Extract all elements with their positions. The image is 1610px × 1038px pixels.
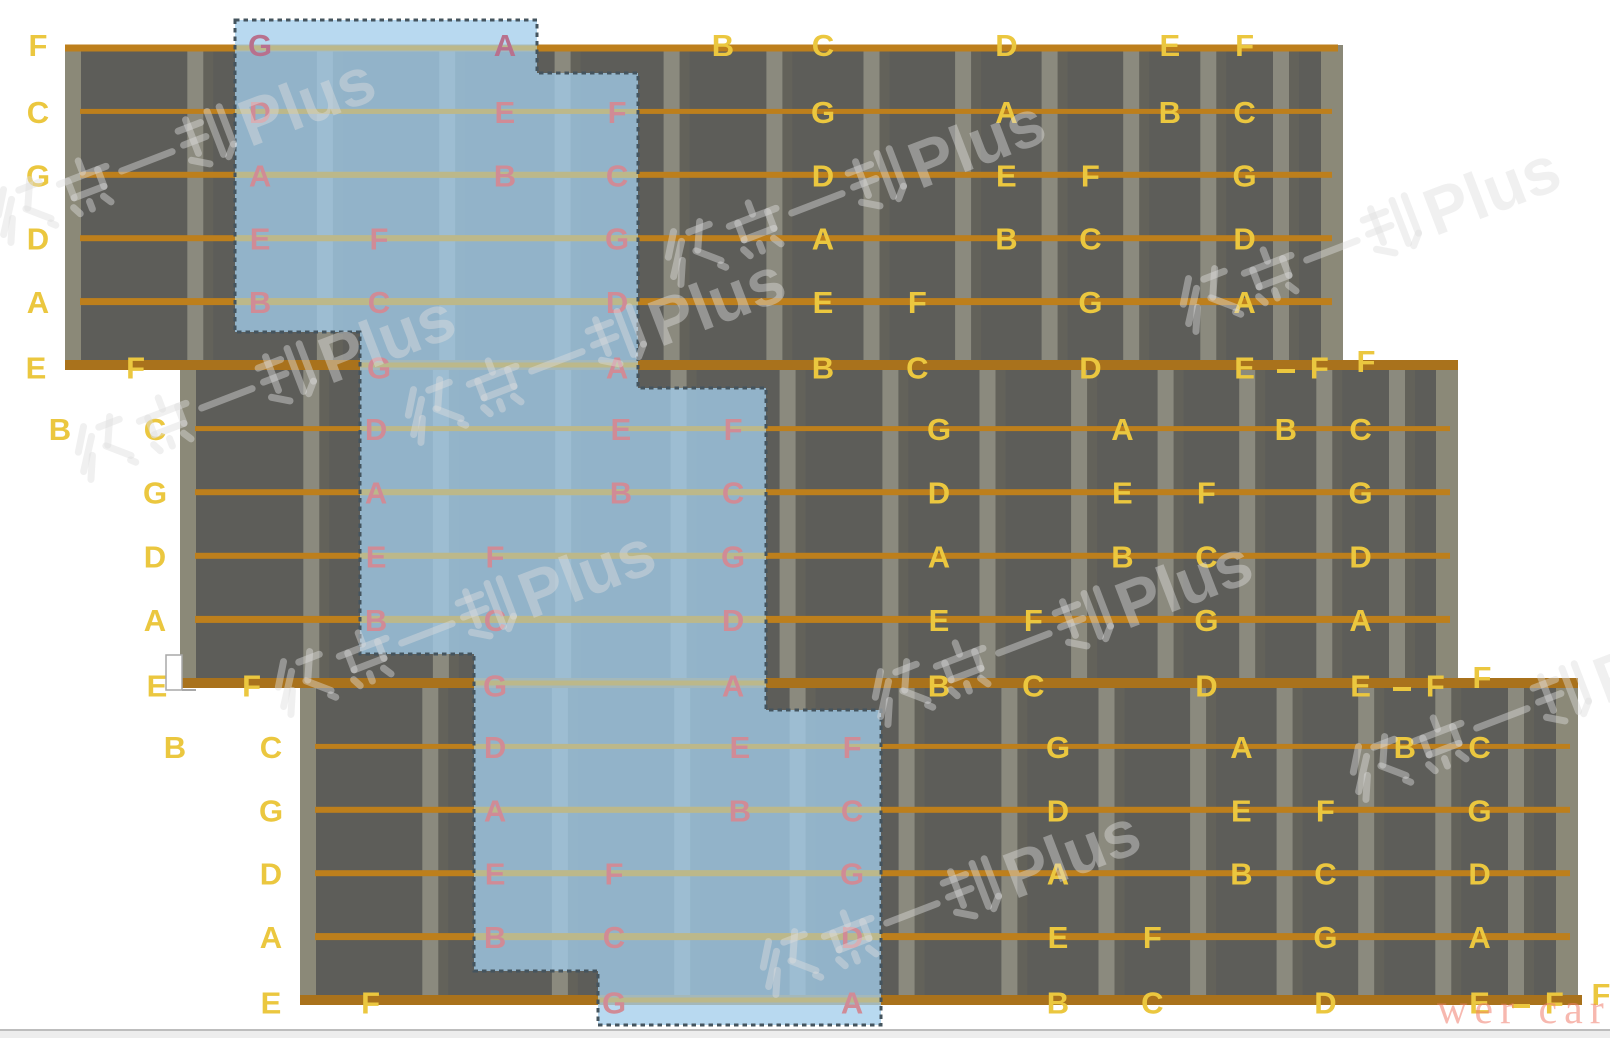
svg-text:G: G xyxy=(1468,793,1492,828)
svg-text:D: D xyxy=(365,412,387,447)
svg-text:F: F xyxy=(486,539,505,574)
svg-text:F: F xyxy=(126,351,145,386)
svg-text:C: C xyxy=(603,920,625,955)
svg-text:F: F xyxy=(1316,793,1335,828)
svg-text:A: A xyxy=(1230,730,1252,765)
svg-text:E: E xyxy=(1231,793,1252,828)
svg-text:G: G xyxy=(721,539,745,574)
svg-text:G: G xyxy=(1349,476,1373,511)
svg-text:A: A xyxy=(1111,412,1133,447)
svg-text:C: C xyxy=(1079,222,1101,257)
svg-text:C: C xyxy=(260,730,282,765)
svg-text:C: C xyxy=(841,793,863,828)
svg-text:B: B xyxy=(1047,986,1069,1021)
svg-text:B: B xyxy=(49,412,71,447)
svg-text:E: E xyxy=(929,603,950,638)
svg-text:B: B xyxy=(365,603,387,638)
svg-text:C: C xyxy=(722,476,744,511)
svg-text:D: D xyxy=(928,476,950,511)
svg-text:F: F xyxy=(1197,476,1216,511)
svg-text:A: A xyxy=(928,539,950,574)
svg-text:C: C xyxy=(906,351,928,386)
svg-text:G: G xyxy=(248,28,272,63)
svg-text:A: A xyxy=(812,222,834,257)
svg-text:G: G xyxy=(1313,920,1337,955)
svg-text:E: E xyxy=(495,95,516,130)
svg-text:C: C xyxy=(1349,412,1371,447)
svg-text:G: G xyxy=(259,793,283,828)
svg-text:C: C xyxy=(1141,986,1163,1021)
svg-text:G: G xyxy=(602,986,626,1021)
svg-text:G: G xyxy=(1046,730,1070,765)
svg-text:B: B xyxy=(610,476,632,511)
svg-text:E: E xyxy=(485,857,506,892)
svg-text:G: G xyxy=(840,857,864,892)
svg-text:D: D xyxy=(1314,986,1336,1021)
svg-text:B: B xyxy=(1394,730,1416,765)
svg-text:D: D xyxy=(260,857,282,892)
svg-text:B: B xyxy=(1159,95,1181,130)
svg-text:F: F xyxy=(843,730,862,765)
svg-text:E: E xyxy=(261,986,282,1021)
svg-text:E: E xyxy=(730,730,751,765)
svg-text:C: C xyxy=(812,28,834,63)
svg-text:E: E xyxy=(1112,476,1133,511)
svg-text:B: B xyxy=(729,793,751,828)
svg-text:C: C xyxy=(1468,730,1490,765)
svg-text:B: B xyxy=(484,920,506,955)
svg-text:E: E xyxy=(813,285,834,320)
svg-text:F: F xyxy=(1235,28,1254,63)
svg-text:D: D xyxy=(1349,539,1371,574)
svg-text:F: F xyxy=(724,412,743,447)
svg-text:wer car: wer car xyxy=(1437,987,1610,1033)
svg-text:C: C xyxy=(27,95,49,130)
svg-text:A: A xyxy=(722,669,744,704)
svg-text:F: F xyxy=(29,28,48,63)
svg-text:Plus: Plus xyxy=(1413,131,1570,250)
svg-text:G: G xyxy=(927,412,951,447)
svg-text:D: D xyxy=(27,222,49,257)
svg-text:D: D xyxy=(995,28,1017,63)
svg-text:D: D xyxy=(1195,669,1217,704)
svg-text:G: G xyxy=(1233,158,1257,193)
svg-text:F: F xyxy=(1426,669,1445,704)
svg-text:D: D xyxy=(722,603,744,638)
svg-text:B: B xyxy=(249,285,271,320)
svg-text:B: B xyxy=(712,28,734,63)
svg-text:F: F xyxy=(370,222,389,257)
svg-text:F: F xyxy=(605,857,624,892)
svg-text:C: C xyxy=(1314,857,1336,892)
svg-text:A: A xyxy=(144,603,166,638)
svg-text:E: E xyxy=(26,351,47,386)
svg-text:F: F xyxy=(1024,603,1043,638)
svg-text:G: G xyxy=(605,222,629,257)
svg-text:E: E xyxy=(250,222,271,257)
svg-text:G: G xyxy=(811,95,835,130)
svg-text:E: E xyxy=(1350,669,1371,704)
svg-text:D: D xyxy=(1233,222,1255,257)
svg-text:A: A xyxy=(484,793,506,828)
svg-text:A: A xyxy=(260,920,282,955)
svg-text:B: B xyxy=(1230,857,1252,892)
svg-text:F: F xyxy=(242,669,261,704)
svg-text:E: E xyxy=(1048,920,1069,955)
svg-text:D: D xyxy=(1079,351,1101,386)
svg-text:D: D xyxy=(144,539,166,574)
svg-text:A: A xyxy=(1349,603,1371,638)
svg-text:G: G xyxy=(1078,285,1102,320)
svg-text:A: A xyxy=(494,28,516,63)
svg-text:G: G xyxy=(143,476,167,511)
svg-text:C: C xyxy=(1022,669,1044,704)
svg-text:B: B xyxy=(1275,412,1297,447)
svg-text:F: F xyxy=(361,986,380,1021)
svg-text:B: B xyxy=(995,222,1017,257)
svg-text:E: E xyxy=(1234,351,1255,386)
svg-text:B: B xyxy=(164,730,186,765)
svg-text:E: E xyxy=(1159,28,1180,63)
svg-text:B: B xyxy=(812,351,834,386)
svg-text:A: A xyxy=(249,158,271,193)
svg-text:A: A xyxy=(27,285,49,320)
svg-text:A: A xyxy=(841,986,863,1021)
svg-text:G: G xyxy=(483,669,507,704)
svg-text:F: F xyxy=(1357,344,1376,379)
svg-text:E: E xyxy=(611,412,632,447)
svg-text:E: E xyxy=(147,669,168,704)
svg-text:F: F xyxy=(908,285,927,320)
svg-text:E: E xyxy=(366,539,387,574)
svg-text:C: C xyxy=(606,158,628,193)
svg-text:A: A xyxy=(1468,920,1490,955)
svg-text:F: F xyxy=(1310,351,1329,386)
svg-text:F: F xyxy=(608,95,627,130)
svg-text:D: D xyxy=(1468,857,1490,892)
svg-text:F: F xyxy=(1081,158,1100,193)
svg-text:D: D xyxy=(484,730,506,765)
svg-text:D: D xyxy=(812,158,834,193)
svg-text:F: F xyxy=(1473,660,1492,695)
svg-text:B: B xyxy=(494,158,516,193)
svg-text:F: F xyxy=(1143,920,1162,955)
svg-text:C: C xyxy=(1233,95,1255,130)
svg-text:A: A xyxy=(365,476,387,511)
